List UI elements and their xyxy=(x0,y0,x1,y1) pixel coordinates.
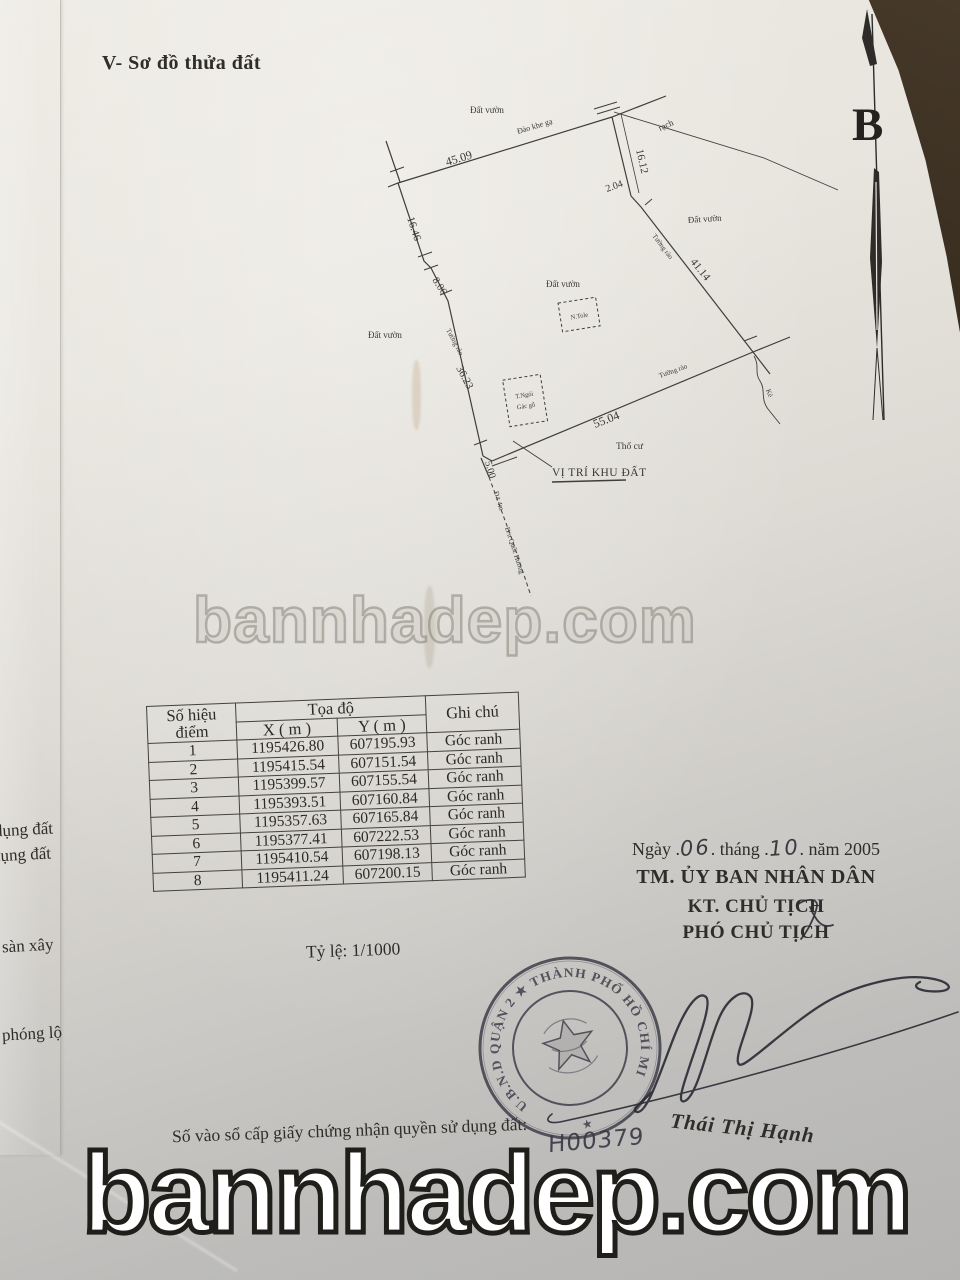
issuing-authority: TM. ỦY BAN NHÂN DÂN xyxy=(536,866,960,889)
north-arrow: B xyxy=(852,9,884,420)
map-scale-label: Tỷ lệ: 1/1000 xyxy=(306,938,401,962)
paper-fold-edge xyxy=(0,0,61,1155)
embankment-label: Kè xyxy=(764,388,774,398)
date-line: Ngày .06. tháng .10. năm 2005 xyxy=(536,836,960,860)
diagram-labels: 45.09 Đào khe gạ 16.12 2.04 41.14 16.46 … xyxy=(368,105,774,575)
house-outline xyxy=(558,297,600,332)
landuse-label: Đất vườn xyxy=(368,330,402,340)
col-header-note: Ghi chú xyxy=(425,692,519,733)
edge-label: Đào khe gạ xyxy=(516,117,554,136)
date-printed: Ngày . xyxy=(632,839,680,859)
fence-label: Tường rào xyxy=(650,232,674,261)
parcel-diagram xyxy=(386,96,838,596)
margin-note-cutoff: dụng đất xyxy=(0,818,54,841)
residential-label: Thổ cư xyxy=(616,441,644,452)
signature-tail xyxy=(548,1012,958,1123)
measure-label: 45.09 xyxy=(444,148,474,169)
north-letter: B xyxy=(852,99,883,151)
north-arrow-blade xyxy=(870,168,882,348)
road-label: Đ/t 4m xyxy=(492,490,506,512)
watermark-bottom: bannhadep.com xyxy=(82,1128,909,1258)
col-header-point: Số hiệu điểm xyxy=(147,703,237,743)
section-heading: V- Sơ đồ thửa đất xyxy=(102,52,261,75)
measure-label: 5.00 xyxy=(482,460,497,480)
stamp-center-star xyxy=(539,1015,599,1072)
road-label: Đ/n Quốc Hương xyxy=(503,526,526,575)
fence-label: Tường rào xyxy=(444,327,465,357)
kt-chu-tich: KT. CHỦ TỊCH xyxy=(536,896,960,918)
measure-label: 2.04 xyxy=(604,178,624,194)
date-month-handwritten: 10 xyxy=(768,835,800,861)
date-day-handwritten: 06 xyxy=(679,835,711,861)
house-label: N.Tole xyxy=(570,312,589,322)
measure-label: 55.04 xyxy=(591,408,621,431)
canal-label: rạch xyxy=(657,117,676,133)
margin-note-cutoff: phóng lộ xyxy=(2,1022,63,1045)
measure-label: 16.12 xyxy=(633,148,650,175)
measure-label: 8.06 xyxy=(429,276,448,297)
coordinate-table: Số hiệu điểm Tọa độ Ghi chú X ( m ) Y ( … xyxy=(146,692,526,892)
margin-note-cutoff: sàn xây xyxy=(2,935,54,958)
deputy-chairman-title: PHÓ CHỦ TỊCH xyxy=(536,922,960,944)
signature-loops xyxy=(635,977,949,1112)
landuse-label: Đất vườn xyxy=(687,213,722,225)
house-label: Gác gỗ xyxy=(516,402,535,412)
measure-label: 36.23 xyxy=(453,364,475,392)
fence-label: Tường rào xyxy=(658,362,689,380)
landuse-label: Đất vườn xyxy=(546,279,580,289)
paper-stain xyxy=(412,360,421,430)
margin-note-cutoff: dụng đất xyxy=(0,843,52,866)
measure-label: 41.14 xyxy=(688,256,713,283)
site-location-label: VỊ TRÍ KHU ĐẤT xyxy=(552,464,647,479)
date-printed: . tháng . xyxy=(711,839,769,859)
house-label: T.Ngói xyxy=(515,391,534,401)
measure-label: 16.46 xyxy=(404,215,423,243)
house-outline xyxy=(503,374,548,426)
watermark-middle: bannhadep.com xyxy=(193,583,697,657)
landuse-label: Đất vườn xyxy=(470,105,504,115)
north-arrow-head xyxy=(862,9,877,66)
scanned-document-photo: V- Sơ đồ thửa đất dụng đất dụng đất sàn … xyxy=(0,0,960,1280)
date-printed: . năm 2005 xyxy=(799,839,880,859)
